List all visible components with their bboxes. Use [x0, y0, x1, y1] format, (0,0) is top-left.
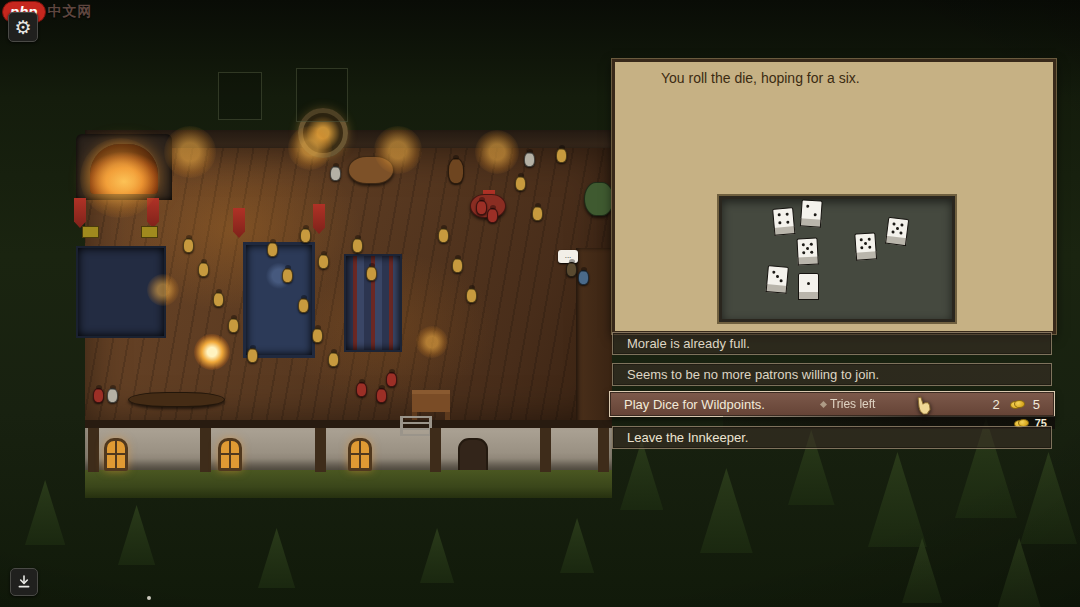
character-sprite	[556, 148, 567, 163]
dice-board	[719, 196, 955, 322]
option-label: Morale is already full.	[627, 336, 750, 351]
character-sprite	[356, 382, 367, 397]
table	[128, 392, 225, 407]
character-sprite	[228, 318, 239, 333]
character-sprite	[300, 228, 311, 243]
lit-window	[104, 438, 128, 471]
character-sprite	[515, 176, 526, 191]
die	[772, 207, 795, 230]
dialog-prompt-text: You roll the die, hoping for a six.	[661, 70, 860, 86]
tries-count: 2	[993, 397, 1000, 412]
pine-tree	[995, 538, 1043, 607]
timber-post	[315, 428, 326, 472]
fireplace	[76, 134, 172, 200]
pine-tree	[118, 505, 155, 565]
download-button[interactable]	[10, 568, 38, 596]
timber-post	[200, 428, 211, 472]
hand-cursor	[912, 396, 934, 418]
character-sprite	[213, 292, 224, 307]
die	[886, 217, 909, 240]
die	[796, 237, 818, 259]
settings-button[interactable]: ⚙	[8, 12, 38, 42]
tries-left-note: Tries left	[821, 397, 876, 411]
option-label: Play Dice for Wildpoints.	[624, 397, 765, 412]
character-sprite	[107, 388, 118, 403]
option-label: Leave the Innkeeper.	[627, 430, 748, 445]
character-sprite	[183, 238, 194, 253]
option-patrons[interactable]: Seems to be no more patrons willing to j…	[612, 363, 1052, 386]
pine-tree	[902, 538, 942, 603]
placement-grid-square	[218, 72, 262, 120]
character-sprite	[438, 228, 449, 243]
character-sprite	[282, 268, 293, 283]
die	[766, 265, 789, 288]
die	[800, 199, 822, 221]
fire-glow	[90, 144, 158, 194]
light-speck	[147, 596, 151, 600]
character-sprite	[532, 206, 543, 221]
ladder	[400, 416, 432, 436]
innkeeper-dialog-panel: You roll the die, hoping for a six.	[612, 59, 1056, 334]
pine-tree	[620, 440, 663, 510]
wall-sign	[82, 226, 99, 238]
grass-strip	[85, 470, 612, 498]
character-sprite	[448, 158, 464, 184]
table	[584, 182, 614, 216]
rug-dark	[76, 246, 166, 338]
dice-cost: 5	[1033, 397, 1040, 412]
game-screen: ... php 中文网 ⚙ You roll the die, hoping f…	[0, 0, 1080, 607]
character-sprite	[476, 200, 487, 215]
character-sprite	[578, 270, 589, 285]
character-sprite	[198, 262, 209, 277]
pine-tree	[700, 468, 753, 553]
gear-icon: ⚙	[14, 16, 31, 39]
character-sprite	[330, 166, 341, 181]
pine-tree	[258, 528, 295, 588]
option-label: Seems to be no more patrons willing to j…	[627, 367, 879, 382]
lit-window	[218, 438, 242, 471]
bullet-icon	[820, 400, 827, 407]
option-play-dice[interactable]: Play Dice for Wildpoints. Tries left 2 5	[609, 391, 1055, 417]
die	[798, 273, 819, 294]
character-sprite	[376, 388, 387, 403]
character-sprite	[328, 352, 339, 367]
pine-tree	[868, 452, 927, 547]
table	[348, 156, 394, 184]
character-sprite	[524, 152, 535, 167]
download-icon	[16, 574, 32, 590]
timber-post	[430, 428, 441, 472]
placement-grid-square	[296, 68, 348, 122]
pine-tree	[25, 480, 65, 545]
pine-tree	[560, 518, 594, 573]
option-leave[interactable]: Leave the Innkeeper.	[612, 426, 1052, 449]
character-sprite	[318, 254, 329, 269]
character-sprite	[366, 266, 377, 281]
die	[854, 232, 876, 254]
character-sprite	[352, 238, 363, 253]
pine-tree	[420, 528, 454, 583]
character-sprite	[247, 348, 258, 363]
character-sprite	[267, 242, 278, 257]
lit-window	[348, 438, 372, 471]
pine-tree	[1020, 452, 1077, 544]
timber-post	[598, 428, 609, 472]
option-morale[interactable]: Morale is already full.	[612, 332, 1052, 355]
wall-sign	[141, 226, 158, 238]
timber-post	[88, 428, 99, 472]
character-sprite	[386, 372, 397, 387]
character-sprite	[93, 388, 104, 403]
timber-post	[540, 428, 551, 472]
character-sprite	[312, 328, 323, 343]
character-sprite	[452, 258, 463, 273]
character-sprite	[487, 208, 498, 223]
character-sprite	[466, 288, 477, 303]
character-sprite	[566, 262, 577, 277]
watermark-text: 中文网	[48, 3, 93, 21]
coin-icon	[1010, 400, 1023, 408]
character-sprite	[298, 298, 309, 313]
